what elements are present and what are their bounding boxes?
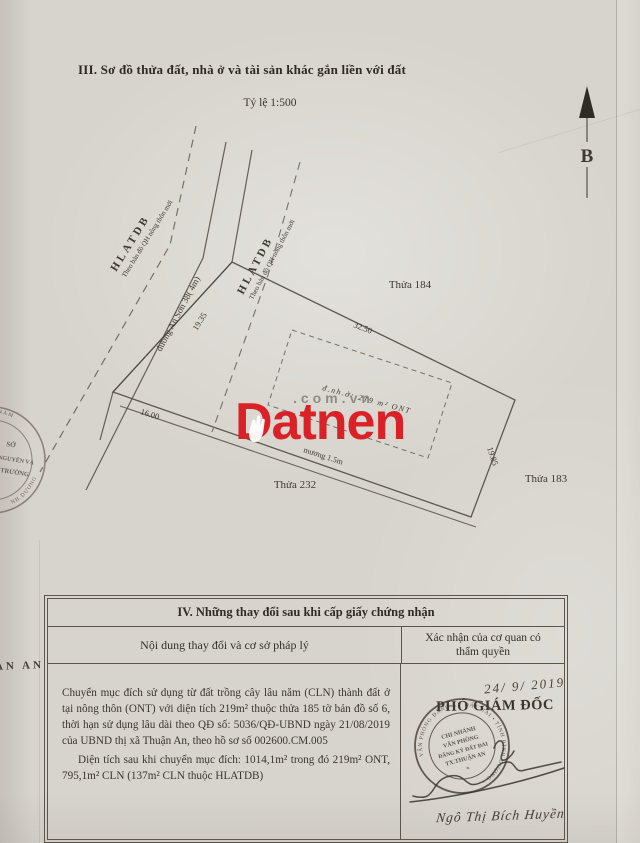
left-stamp-line2: NGUYÊN VÀ	[0, 453, 35, 467]
section4-header-row: Nội dung thay đổi và cơ sở pháp lý Xác n…	[48, 627, 564, 664]
north-label: B	[581, 146, 594, 167]
dim-bottom-left: 16.00	[139, 406, 160, 421]
dim-top: 32.50	[352, 320, 373, 336]
dim-frontage: 19.35	[190, 311, 209, 333]
neighbour-parcel-east: Thửa 183	[525, 473, 568, 485]
neighbour-parcel-north: Thửa 184	[389, 279, 432, 291]
col-header-confirmation: Xác nhận của cơ quan có thẩm quyền	[402, 627, 564, 663]
corridor-label-west: HLATDB Theo bản đồ QH nông thôn mới	[108, 191, 174, 279]
page-edge-strip	[617, 0, 640, 843]
scanned-certificate-page: III. Sơ đồ thửa đất, nhà ở và tài sản kh…	[0, 0, 640, 843]
change-paragraph-2: Diện tích sau khi chuyển mục đích: 1014,…	[62, 753, 390, 785]
north-arrow: B	[579, 86, 595, 198]
vertical-crease	[39, 540, 40, 843]
left-margin-stamp: HCN VIỆT NAM NH DƯƠNG SỞ NGUYÊN VÀ TRƯỜN…	[0, 398, 68, 528]
left-stamp-line3: TRƯỜNG	[0, 466, 30, 478]
col-header-content: Nội dung thay đổi và cơ sở pháp lý	[48, 627, 402, 663]
left-stamp-line1: SỞ	[6, 440, 17, 449]
signature-ink	[398, 718, 578, 818]
section4-title: IV. Những thay đổi sau khi cấp giấy chứn…	[48, 599, 564, 627]
watermark: .com.vn Datnen	[233, 388, 433, 468]
change-paragraph-1: Chuyển mục đích sử dụng từ đất trồng cây…	[62, 686, 390, 750]
watermark-hand-icon	[243, 412, 269, 446]
page-edge-line	[616, 0, 617, 843]
left-margin-text-fragment: AN AN	[0, 659, 44, 673]
neighbour-parcel-southwest: Thửa 232	[274, 479, 316, 491]
dim-right: 19.85	[485, 446, 500, 467]
road-east-edge-line	[100, 150, 252, 440]
corridor-label-east: HLATDB Theo bản đồ QH nông thôn mới	[235, 212, 297, 302]
road-name-label: đường An Sơn 38( 4m)	[154, 275, 202, 353]
change-content-cell: Chuyển mục đích sử dụng từ đất trồng cây…	[48, 664, 401, 839]
